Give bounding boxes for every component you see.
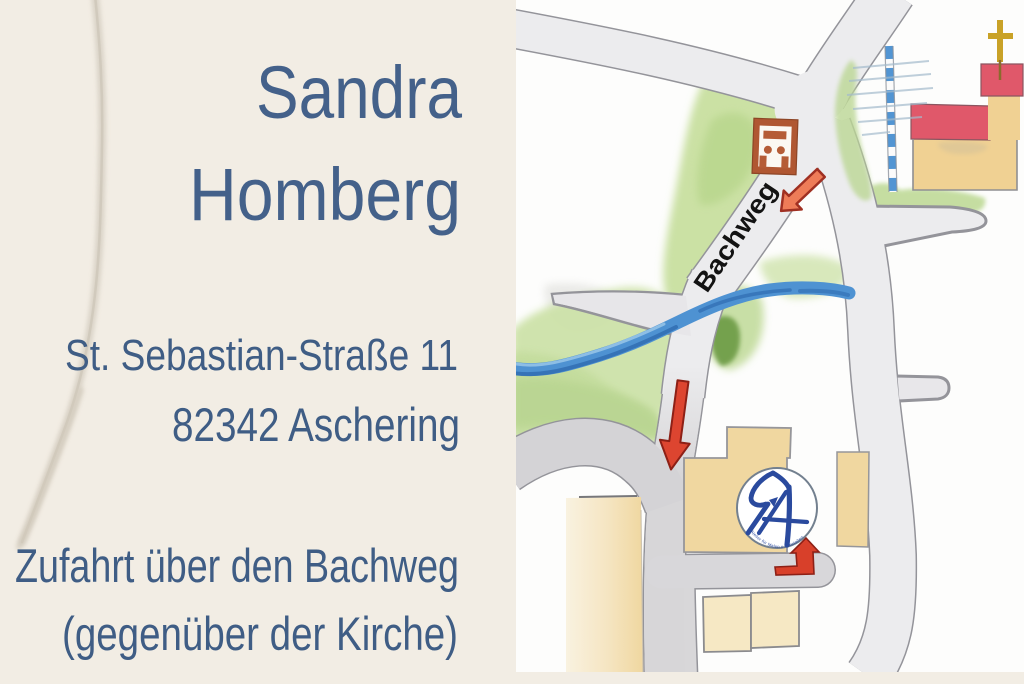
svg-text:St. Sebastian-Straße 11: St. Sebastian-Straße 11 xyxy=(65,331,458,380)
svg-text:Sandra: Sandra xyxy=(256,51,463,134)
svg-text:Zufahrt über den Bachweg: Zufahrt über den Bachweg xyxy=(15,539,459,592)
svg-text:Homberg: Homberg xyxy=(189,153,461,236)
svg-text:82342 Aschering: 82342 Aschering xyxy=(172,398,460,451)
svg-text:(gegenüber der Kirche): (gegenüber der Kirche) xyxy=(62,607,458,660)
